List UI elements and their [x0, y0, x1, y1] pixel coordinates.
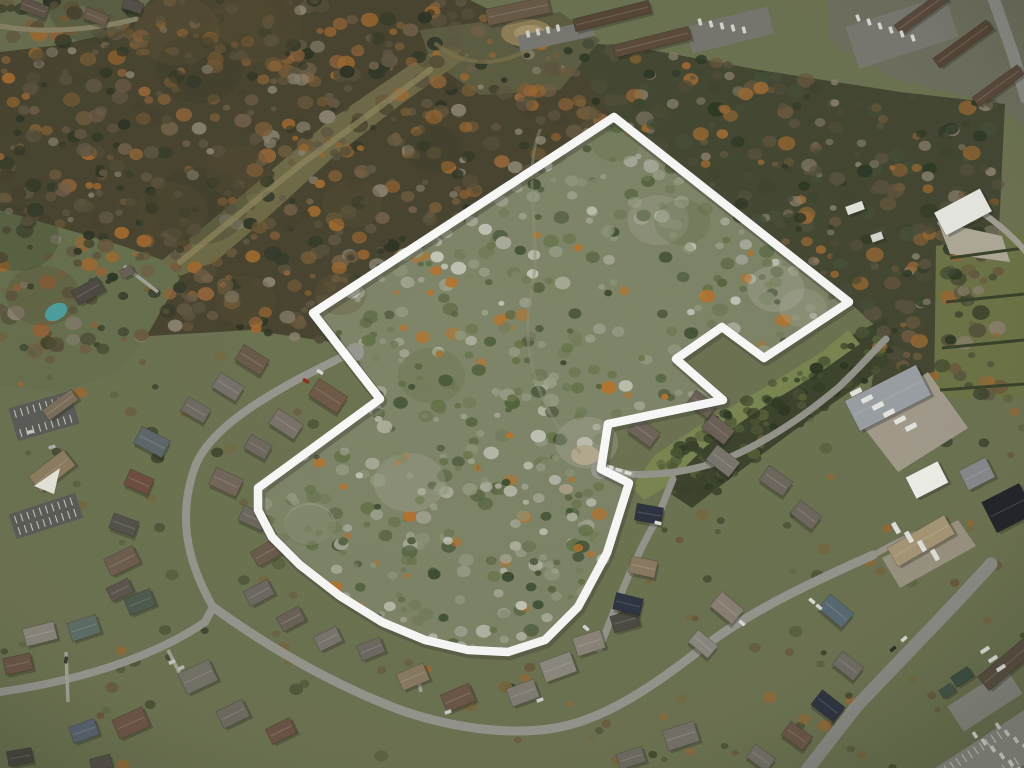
- vignette-overlay: [0, 0, 1024, 768]
- screenshot-root: [0, 0, 1024, 768]
- vignette-layer: [0, 0, 1024, 768]
- aerial-photo: [0, 0, 1024, 768]
